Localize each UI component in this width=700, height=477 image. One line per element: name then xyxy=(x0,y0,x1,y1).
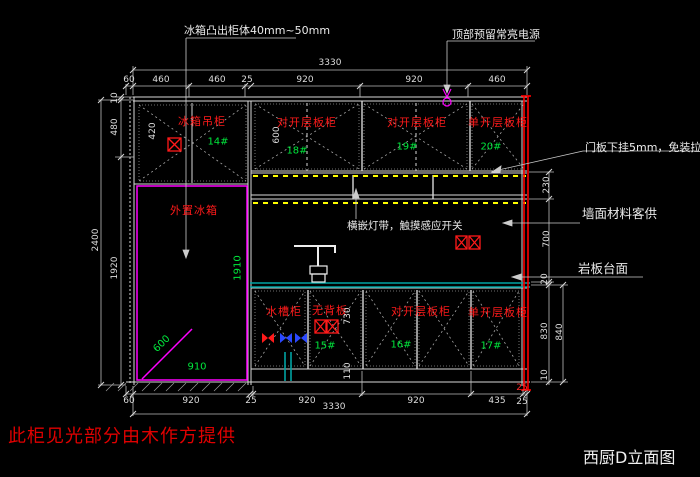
dim-bottom-1: 920 xyxy=(182,396,199,406)
leader-lines xyxy=(183,38,698,280)
cold-water-valve-icons xyxy=(280,333,307,343)
label-base-single: 单开层板柜 xyxy=(468,304,528,320)
dim-top-6: 460 xyxy=(488,75,505,85)
dim-bottom-4: 920 xyxy=(407,396,424,406)
dim-right-total: 840 xyxy=(555,323,565,340)
dim-top-2: 460 xyxy=(208,75,225,85)
note-door-gap: 门板下挂5mm，免装拉手 xyxy=(585,139,700,155)
socket-symbol-backsplash xyxy=(456,236,480,249)
label-upper-double-2: 对开层板柜 xyxy=(387,114,447,130)
number-upper-double-2: 19# xyxy=(396,142,417,153)
dim-fridge-cab-height: 420 xyxy=(148,122,158,139)
dim-top-3: 25 xyxy=(241,75,252,85)
cad-linework xyxy=(0,0,700,477)
number-upper-single: 20# xyxy=(480,142,501,153)
dim-left-total: 2400 xyxy=(91,229,101,252)
note-wall-material: 墙面材料客供 xyxy=(582,203,657,222)
dim-top-total: 3330 xyxy=(319,58,342,68)
drawing-title: 西厨D立面图 xyxy=(583,444,675,468)
floor-hatch xyxy=(106,383,246,391)
dim-toe-kick: 110 xyxy=(343,362,353,379)
number-upper-double-1: 18# xyxy=(286,146,307,157)
number-base-double: 16# xyxy=(390,340,411,351)
dim-wall: 25 xyxy=(516,397,527,407)
dim-right-3: 830 xyxy=(540,322,550,339)
dim-bottom-5: 435 xyxy=(488,396,505,406)
label-external-fridge: 外置冰箱 xyxy=(170,202,218,218)
label-base-double: 对开层板柜 xyxy=(391,303,451,319)
bottom-note: 此柜见光部分由木作方提供 xyxy=(8,422,236,448)
dim-left-0: 10 xyxy=(110,92,120,103)
dim-base-door-height: 730 xyxy=(343,307,353,324)
note-fridge-protrusion: 冰箱凸出柜体40mm~50mm xyxy=(184,22,330,38)
dim-fridge-width: 910 xyxy=(187,362,206,373)
dim-right-0: 230 xyxy=(542,176,552,193)
dim-top-4: 920 xyxy=(296,75,313,85)
dim-wall-red: 25 xyxy=(516,383,527,393)
dim-fridge-height: 1910 xyxy=(233,255,244,280)
dim-top-1: 460 xyxy=(152,75,169,85)
cad-elevation-canvas: 冰箱凸出柜体40mm~50mm 顶部预留常亮电源 门板下挂5mm，免装拉手 墙面… xyxy=(0,0,700,477)
hot-water-valve-icon xyxy=(262,333,274,343)
number-fridge-cabinet: 14# xyxy=(207,137,228,148)
dim-upper-height: 600 xyxy=(272,126,282,143)
dim-right-2: 20 xyxy=(540,273,550,284)
socket-symbol-sink xyxy=(315,320,338,333)
dim-left-1: 480 xyxy=(110,118,120,135)
dim-left-2: 1920 xyxy=(110,257,120,280)
dim-right-1: 700 xyxy=(542,230,552,247)
number-base-single: 17# xyxy=(480,341,501,352)
label-upper-single: 单开层板柜 xyxy=(468,114,528,130)
dim-bottom-total: 3330 xyxy=(323,402,346,412)
number-no-back-panel: 15# xyxy=(314,341,335,352)
label-upper-double-1: 对开层板柜 xyxy=(277,114,337,130)
dim-right-4: 10 xyxy=(540,369,550,380)
label-fridge-cabinet: 冰箱吊柜 xyxy=(178,113,226,129)
note-light-strip: 横嵌灯带，触摸感应开关 xyxy=(347,218,463,233)
dim-top-0: 60 xyxy=(123,75,134,85)
faucet-icon xyxy=(294,246,336,282)
socket-symbol-fridge-cab xyxy=(168,138,181,151)
dim-bottom-0: 60 xyxy=(123,396,134,406)
note-countertop: 岩板台面 xyxy=(578,258,628,277)
label-sink-cabinet: 水槽柜 xyxy=(266,303,302,319)
dim-top-5: 920 xyxy=(405,75,422,85)
dim-bottom-2: 25 xyxy=(245,396,256,406)
note-top-power: 顶部预留常亮电源 xyxy=(452,26,540,42)
dim-bottom-3: 920 xyxy=(298,396,315,406)
